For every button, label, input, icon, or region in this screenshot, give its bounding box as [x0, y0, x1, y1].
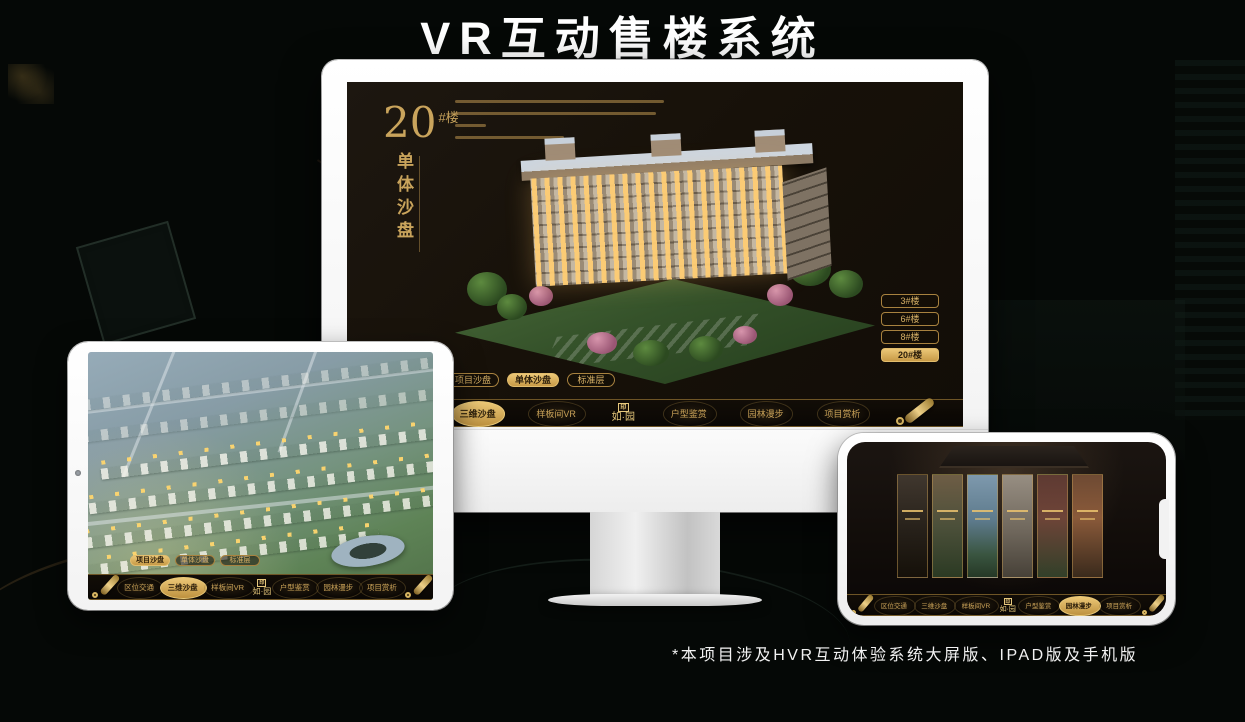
scroll-handle-icon[interactable]	[405, 576, 429, 598]
nav-item-label: 园林漫步	[323, 583, 353, 592]
tab-single-sandbox[interactable]: 单体沙盘	[507, 373, 559, 387]
tab-standard-floor[interactable]: 标准层	[567, 373, 615, 387]
building-3d-render[interactable]	[437, 144, 887, 392]
floor-button-group: 3#楼 6#楼 8#楼 20#楼	[881, 294, 939, 362]
nav-item-label: 样板间VR	[962, 603, 991, 610]
title-divider-line	[419, 156, 420, 252]
roof-dormer	[650, 133, 681, 157]
scroll-tip-icon	[851, 610, 856, 615]
subtitle-vertical: 单体沙盘	[391, 152, 416, 244]
tree	[829, 270, 863, 298]
scroll-tip-icon	[92, 592, 98, 598]
brand-logo-text: 如·园	[1000, 606, 1016, 613]
building-number: 20	[383, 98, 436, 147]
nav-item-label: 户型鉴赏	[671, 409, 707, 419]
tree	[497, 294, 527, 320]
scene-card[interactable]	[1072, 474, 1103, 578]
tree	[689, 336, 723, 362]
nav-item-label: 项目赏析	[367, 583, 397, 592]
nav-item-label: 区位交通	[881, 603, 907, 610]
nav-item-label: 园林漫步	[1066, 603, 1092, 610]
background-sign-frame	[76, 221, 196, 346]
background-building-strip	[1175, 60, 1245, 420]
tab-project-sandbox[interactable]: 项目沙盘	[447, 373, 499, 387]
scroll-roll-icon	[413, 574, 433, 597]
footnote-text: *本项目涉及HVR互动体验系统大屏版、IPAD版及手机版	[672, 641, 1138, 665]
brand-logo-text: 如·园	[253, 587, 272, 596]
scroll-tip-icon	[1142, 610, 1147, 615]
nav-item-label: 户型鉴赏	[280, 583, 310, 592]
phone-device: 区位交通 三维沙盘 样板间VR 印 如·园 户型鉴赏 园林漫步 项目赏析	[838, 433, 1175, 625]
brand-logo[interactable]: 印 如·园	[1000, 598, 1016, 613]
nav-item-unit-plans[interactable]: 户型鉴赏	[666, 406, 712, 421]
brand-logo-text: 如·园	[612, 412, 635, 423]
description-line	[455, 112, 656, 115]
roof-dormer	[544, 137, 575, 161]
nav-item-unit-plans[interactable]: 户型鉴赏	[275, 581, 315, 594]
brand-seal-icon: 印	[1004, 598, 1012, 605]
nav-item-sandbox[interactable]: 三维沙盘	[455, 406, 501, 421]
ipad-screen: 项目沙盘 单体沙盘 标准层 区位交通 三维沙盘 样板间VR 印 如·园 户型鉴赏…	[88, 352, 433, 600]
nav-item-location[interactable]: 区位交通	[876, 599, 912, 611]
scroll-handle-icon[interactable]	[92, 576, 116, 598]
description-line	[455, 100, 664, 103]
background-gold-marks	[8, 64, 54, 104]
nav-item-project-gallery[interactable]: 项目赏析	[362, 581, 402, 594]
ipad-nav-bar: 区位交通 三维沙盘 样板间VR 印 如·园 户型鉴赏 园林漫步 项目赏析	[88, 574, 433, 600]
phone-screen: 区位交通 三维沙盘 样板间VR 印 如·园 户型鉴赏 园林漫步 项目赏析	[847, 442, 1166, 616]
nav-item-unit-plans[interactable]: 户型鉴赏	[1020, 599, 1056, 611]
roof-dormer	[754, 129, 785, 153]
nav-item-label: 样板间VR	[536, 409, 576, 419]
phone-nav-bar: 区位交通 三维沙盘 样板间VR 印 如·园 户型鉴赏 园林漫步 项目赏析	[847, 594, 1166, 616]
building-number-title: 20#楼	[383, 102, 459, 144]
nav-item-label: 项目赏析	[1106, 603, 1132, 610]
scroll-roll-icon	[904, 397, 936, 425]
scene-card[interactable]	[967, 474, 998, 578]
building-facade	[530, 165, 787, 286]
floor-button-3[interactable]: 3#楼	[881, 294, 939, 308]
monitor-stand	[590, 512, 720, 598]
brand-logo[interactable]: 印 如·园	[253, 579, 272, 596]
scroll-handle-icon[interactable]	[851, 595, 871, 615]
brand-seal-icon: 印	[257, 579, 266, 587]
brand-seal-icon: 印	[618, 403, 629, 412]
nav-item-project-gallery[interactable]: 项目赏析	[1101, 599, 1137, 611]
scroll-tip-icon	[896, 417, 904, 425]
blossom-tree	[529, 286, 553, 306]
scroll-roll-icon	[1148, 594, 1165, 613]
nav-item-label: 项目赏析	[824, 409, 860, 419]
blossom-tree	[587, 332, 617, 354]
view-tab-group: 项目沙盘 单体沙盘 标准层	[447, 373, 615, 387]
description-line	[455, 124, 486, 127]
scene-card[interactable]	[1002, 474, 1033, 578]
nav-item-label: 户型鉴赏	[1025, 603, 1051, 610]
nav-item-label: 样板间VR	[211, 583, 244, 592]
scroll-tip-icon	[405, 592, 411, 598]
ipad-view-tab-group: 项目沙盘 单体沙盘 标准层	[130, 555, 260, 566]
nav-item-garden-walk[interactable]: 园林漫步	[318, 581, 358, 594]
nav-item-sandbox[interactable]: 三维沙盘	[163, 581, 203, 594]
brand-logo[interactable]: 印 如·园	[612, 403, 635, 423]
tree	[633, 340, 669, 366]
phone-notch	[1159, 499, 1169, 559]
scene-card-carousel	[897, 474, 1103, 578]
blossom-tree	[733, 326, 757, 344]
scroll-handle-icon[interactable]	[1142, 595, 1162, 615]
nav-item-label: 三维沙盘	[921, 603, 947, 610]
tab-standard-floor[interactable]: 标准层	[220, 555, 260, 566]
blossom-tree	[767, 284, 793, 306]
floor-button-8[interactable]: 8#楼	[881, 330, 939, 344]
scroll-roll-icon	[857, 594, 874, 613]
nav-item-showroom-vr[interactable]: 样板间VR	[531, 406, 581, 421]
nav-item-garden-walk[interactable]: 园林漫步	[1061, 599, 1097, 611]
scene-card[interactable]	[897, 474, 928, 578]
nav-item-garden-walk[interactable]: 园林漫步	[743, 406, 789, 421]
building-side-face	[782, 167, 831, 280]
nav-item-sandbox[interactable]: 三维沙盘	[916, 599, 952, 611]
scene-card[interactable]	[932, 474, 963, 578]
monitor-base	[548, 594, 762, 606]
ipad-device: 项目沙盘 单体沙盘 标准层 区位交通 三维沙盘 样板间VR 印 如·园 户型鉴赏…	[68, 342, 453, 610]
nav-item-label: 区位交通	[124, 583, 154, 592]
ipad-camera-icon	[75, 470, 81, 476]
nav-item-label: 三维沙盘	[168, 583, 198, 592]
scroll-handle-icon[interactable]	[896, 401, 932, 425]
floor-button-20[interactable]: 20#楼	[881, 348, 939, 362]
tab-project-sandbox[interactable]: 项目沙盘	[130, 555, 170, 566]
tab-single-sandbox[interactable]: 单体沙盘	[175, 555, 215, 566]
nav-item-project-gallery[interactable]: 项目赏析	[819, 406, 865, 421]
nav-item-label: 三维沙盘	[460, 409, 496, 419]
nav-item-label: 园林漫步	[748, 409, 784, 419]
page-title: VR互动售楼系统	[0, 2, 1245, 67]
nav-item-location[interactable]: 区位交通	[119, 581, 159, 594]
nav-item-showroom-vr[interactable]: 样板间VR	[957, 599, 996, 611]
scene-card[interactable]	[1037, 474, 1068, 578]
interior-ceiling	[939, 446, 1089, 468]
nav-item-showroom-vr[interactable]: 样板间VR	[206, 581, 249, 594]
floor-button-6[interactable]: 6#楼	[881, 312, 939, 326]
